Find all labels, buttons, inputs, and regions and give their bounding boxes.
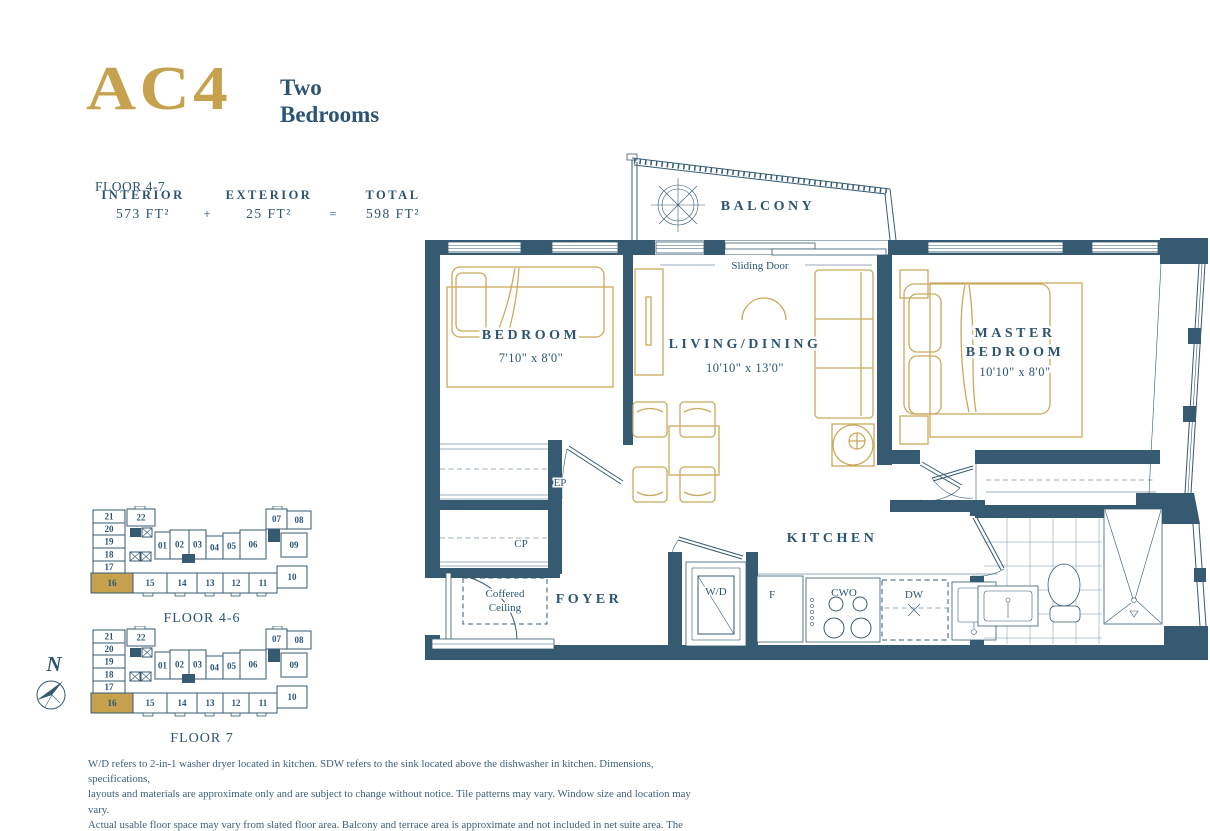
keyplan-unit-number: 14 <box>178 578 188 588</box>
keyplan-unit-number: 15 <box>146 698 156 708</box>
keyplan-balcony-tab <box>175 593 185 596</box>
foyer-label: FOYER <box>556 592 623 607</box>
bathroom <box>972 509 1162 644</box>
keyplan-unit-number: 17 <box>105 682 115 692</box>
keyplan-balcony-tab <box>135 626 145 629</box>
keyplan-service-core <box>268 529 280 542</box>
keyplan-balcony-tab <box>205 593 214 596</box>
balcony-wheel-decor <box>651 178 705 232</box>
keyplan-unit-number: 06 <box>249 660 259 670</box>
keyplan-unit-number: 21 <box>105 512 115 522</box>
interior-label: INTERIOR <box>93 188 193 203</box>
bedroom-dims: 7'10" x 8'0" <box>499 351 563 365</box>
floorplan-drawing: BALCONY Sliding Door BEDROOM 7'10" x 8'0… <box>420 148 1210 668</box>
keyplan-unit-number: 13 <box>206 578 216 588</box>
keyplan-balcony-tab <box>143 713 153 716</box>
side-table <box>832 424 874 466</box>
keyplan-floor-4-6: 2120191817161514131211102201020304050607… <box>85 506 319 627</box>
keyplan-unit-number: 13 <box>206 698 216 708</box>
sliding-door-label: Sliding Door <box>731 260 788 272</box>
keyplan-balcony-tab <box>273 506 282 509</box>
keyplan-unit-number: 07 <box>272 634 282 644</box>
keyplan-service-core <box>130 648 141 657</box>
keyplan-balcony-tab <box>257 593 266 596</box>
kitchen: W/D F CWO DW <box>669 537 998 646</box>
dining-chairs <box>633 402 715 502</box>
keyplan-unit-number: 19 <box>105 537 115 547</box>
ep-closet-label: EP <box>554 477 567 489</box>
disclaimer-line: W/D refers to 2-in-1 washer dryer locate… <box>88 757 700 787</box>
keyplan-unit-number: 22 <box>137 513 147 523</box>
keyplan-unit-number: 19 <box>105 657 115 667</box>
keyplan-unit-number: 11 <box>259 698 268 708</box>
hall-doors <box>920 462 1156 501</box>
coffered-ceiling-line2: Ceiling <box>489 602 522 614</box>
keyplan-unit-number: 14 <box>178 698 188 708</box>
keyplan-unit-number: 02 <box>175 540 185 550</box>
keyplan-unit-number: 06 <box>249 540 259 550</box>
exterior-value: 25 FT² <box>221 206 317 222</box>
keyplan-unit-number: 20 <box>105 524 115 534</box>
keyplan-balcony-tab <box>231 593 240 596</box>
unit-type-line1: Two <box>280 74 379 101</box>
keyplan-unit-number: 03 <box>193 540 203 550</box>
keyplan-unit-number: 12 <box>232 578 242 588</box>
disclaimer-line: layouts and materials are approximate on… <box>88 787 700 817</box>
keyplan-caption: FLOOR 4-6 <box>85 611 319 627</box>
keyplan-balcony-tab <box>205 713 214 716</box>
bedroom-label: BEDROOM <box>482 328 580 343</box>
keyplan-unit-number: 16 <box>108 578 118 588</box>
keyplan-unit-number: 18 <box>105 550 115 560</box>
disclaimer-line: Actual usable floor space may vary from … <box>88 818 700 831</box>
keyplan-caption: FLOOR 7 <box>85 731 319 747</box>
balcony-label: BALCONY <box>721 199 816 214</box>
cp-closet-label: CP <box>514 538 527 550</box>
keyplan-unit-number: 01 <box>158 661 168 671</box>
keyplan-unit-number: 05 <box>227 661 237 671</box>
keyplan-balcony-tab <box>257 713 266 716</box>
keyplan-unit-number: 08 <box>295 515 305 525</box>
keyplan-unit-number: 05 <box>227 541 237 551</box>
unit-code: AC4 <box>86 58 231 120</box>
keyplan-unit-number: 01 <box>158 541 168 551</box>
keyplan-unit-number: 02 <box>175 660 185 670</box>
unit-type-line2: Bedrooms <box>280 101 379 128</box>
disclaimer: W/D refers to 2-in-1 washer dryer locate… <box>88 757 700 831</box>
unit-type: Two Bedrooms <box>280 74 379 128</box>
keyplan-unit-number: 04 <box>210 543 220 553</box>
keyplan-unit-number: 09 <box>290 540 300 550</box>
keyplan-balcony-tab <box>135 506 145 509</box>
keyplan-drawing-floor-4-6: 2120191817161514131211102201020304050607… <box>85 506 319 598</box>
keyplan-unit-number: 21 <box>105 632 115 642</box>
keyplan-balcony-tab <box>273 626 282 629</box>
plus-sign: + <box>193 206 221 222</box>
exterior-label: EXTERIOR <box>221 188 317 203</box>
keyplan-unit-number: 22 <box>137 633 147 643</box>
keyplan-service-core <box>182 554 195 563</box>
master-dims: 10'10" x 8'0" <box>979 365 1050 379</box>
keyplan-unit-number: 11 <box>259 578 268 588</box>
keyplan-unit-number: 09 <box>290 660 300 670</box>
master-label-line2: BEDROOM <box>966 345 1064 360</box>
keyplan-unit-number: 04 <box>210 663 220 673</box>
foyer: Coffered Ceiling <box>432 573 554 649</box>
living-label: LIVING/DINING <box>669 337 822 352</box>
living-furniture <box>633 269 874 502</box>
area-table: INTERIOR EXTERIOR TOTAL 573 FT² + 25 FT²… <box>93 188 437 222</box>
sliding-door: Sliding Door <box>655 240 888 272</box>
keyplan-unit-number: 03 <box>193 660 203 670</box>
balcony: BALCONY <box>627 154 896 240</box>
interior-value: 573 FT² <box>93 206 193 222</box>
keyplan-unit-number: 20 <box>105 644 115 654</box>
kitchen-label: KITCHEN <box>787 531 878 546</box>
keyplan-balcony-tab <box>231 713 240 716</box>
living-dims: 10'10" x 13'0" <box>706 361 784 375</box>
keyplan-unit-number: 18 <box>105 670 115 680</box>
equals-sign: = <box>317 206 349 222</box>
floorplan-page: AC4 Two Bedrooms FLOOR 4-7 INTERIOR EXTE… <box>0 0 1210 831</box>
keyplan-unit-number: 12 <box>232 698 242 708</box>
fridge-label: F <box>769 589 775 601</box>
dishwasher-label: DW <box>905 589 924 601</box>
washer-dryer-label: W/D <box>705 586 726 598</box>
master-label-line1: MASTER <box>975 326 1056 341</box>
keyplan-drawing-floor-7: 2120191817161514131211102201020304050607… <box>85 626 319 718</box>
keyplan-unit-number: 10 <box>288 572 298 582</box>
keyplan-unit-number: 16 <box>108 698 118 708</box>
keyplan-service-core <box>268 649 280 662</box>
keyplan-unit-number: 07 <box>272 514 282 524</box>
keyplan-unit-number: 17 <box>105 562 115 572</box>
coffered-ceiling-line1: Coffered <box>486 588 525 600</box>
keyplan-service-core <box>130 528 141 537</box>
north-label: N <box>45 652 62 676</box>
keyplan-floor-7: 2120191817161514131211102201020304050607… <box>85 626 319 747</box>
keyplan-unit-number: 15 <box>146 578 156 588</box>
keyplan-unit-number: 08 <box>295 635 305 645</box>
north-arrow: N <box>18 645 88 725</box>
keyplan-balcony-tab <box>143 593 153 596</box>
keyplan-unit-number: 10 <box>288 692 298 702</box>
keyplan-service-core <box>182 674 195 683</box>
keyplan-balcony-tab <box>175 713 185 716</box>
bedroom-furniture <box>447 267 613 387</box>
